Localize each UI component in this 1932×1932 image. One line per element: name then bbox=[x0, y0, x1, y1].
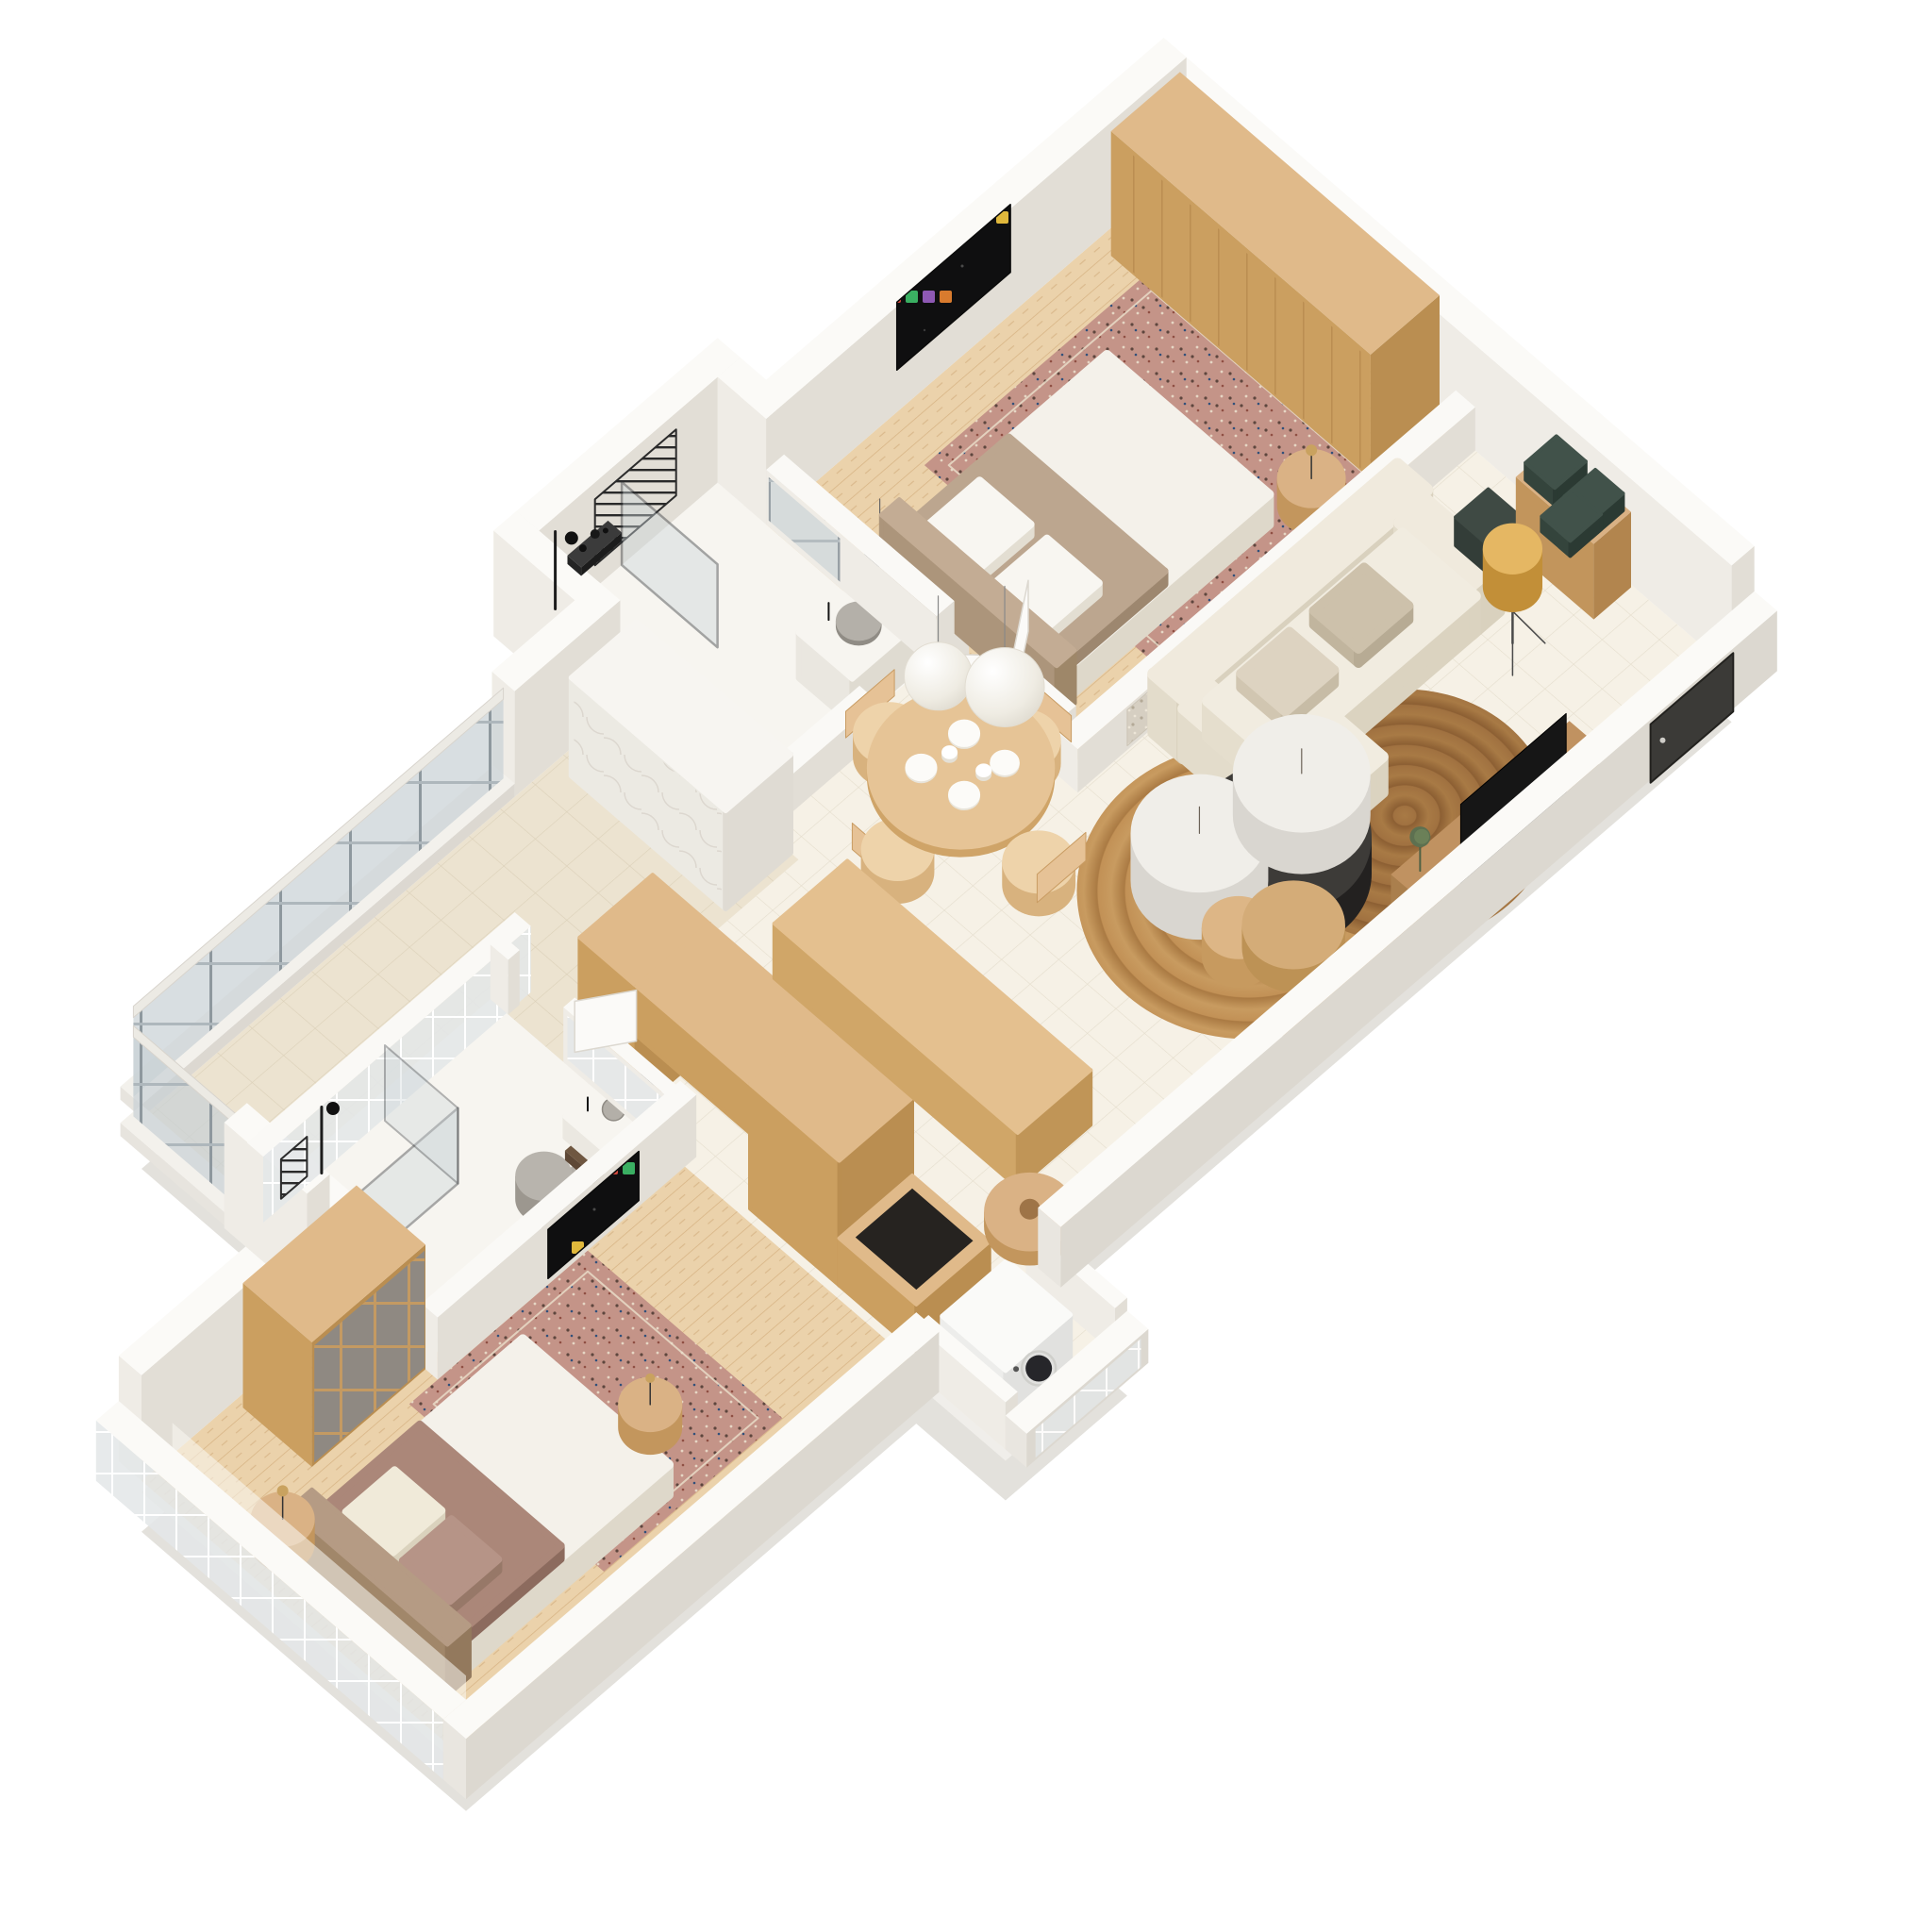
bathroom2-shower-head bbox=[565, 531, 578, 544]
entrance-door-handle bbox=[1660, 738, 1666, 743]
plant-foliage bbox=[1414, 829, 1429, 844]
dinner-plate bbox=[948, 781, 980, 808]
dinner-plate bbox=[990, 750, 1020, 775]
pet-bed-cushion bbox=[1020, 1199, 1041, 1220]
bedroom1-table-lamp-shade bbox=[277, 1485, 289, 1496]
coffee-cup bbox=[941, 745, 958, 759]
floor-plan-stage bbox=[0, 0, 1932, 1932]
coffee-cup bbox=[975, 763, 991, 777]
bedroom1-table-lamp-shade bbox=[645, 1374, 655, 1383]
balcony-parapet-glazed-left bbox=[247, 1142, 263, 1223]
floor-lamp-amber-shade bbox=[1483, 524, 1542, 575]
wall-glass-bathroom1-a-right bbox=[508, 950, 520, 1014]
bathroom1-door-leaf bbox=[575, 991, 636, 1053]
floor-plan-3d-render bbox=[0, 0, 1932, 1932]
rattan-pouf bbox=[1241, 880, 1344, 969]
bathroom1-shower-head bbox=[326, 1102, 340, 1115]
dinner-plate bbox=[948, 720, 980, 747]
bedroom2-table-lamp-shade bbox=[1306, 444, 1317, 456]
washer-door bbox=[1025, 1356, 1052, 1382]
washer-button bbox=[1013, 1366, 1019, 1372]
bathroom2-bottle bbox=[579, 544, 587, 552]
pendant-sphere-white bbox=[965, 647, 1044, 726]
bathroom2-bottle bbox=[603, 527, 608, 533]
pendant-sphere-white bbox=[905, 642, 973, 710]
bathroom2-bottle bbox=[591, 529, 600, 539]
dinner-plate bbox=[905, 754, 937, 781]
